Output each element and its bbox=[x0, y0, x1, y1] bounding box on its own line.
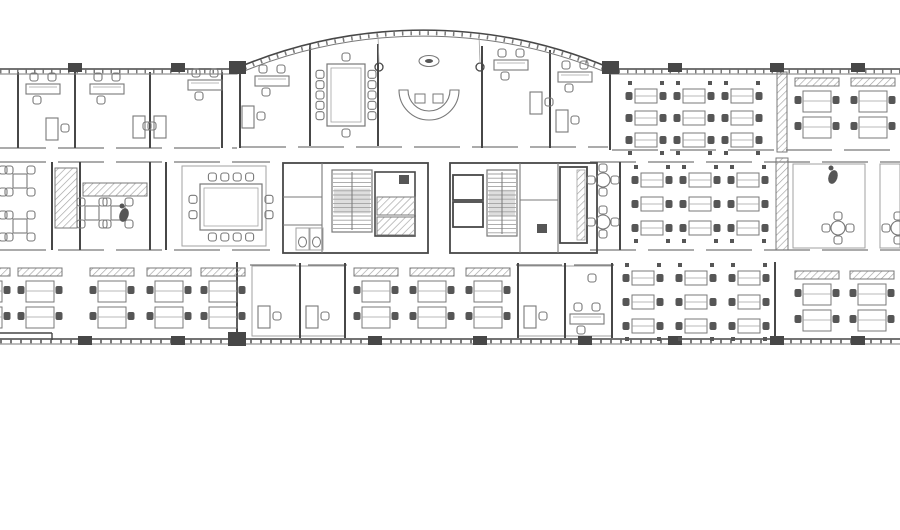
open-plan-desk-grids bbox=[623, 81, 770, 341]
document-canvas bbox=[0, 0, 900, 530]
restroom-fixtures bbox=[296, 228, 323, 250]
building-core bbox=[283, 163, 597, 253]
service-shaft bbox=[560, 167, 587, 243]
reception-lounge bbox=[399, 56, 459, 121]
elevator-bank bbox=[375, 172, 483, 236]
floor-plan bbox=[0, 0, 900, 530]
floor-plan-drawing bbox=[0, 0, 900, 530]
stairs bbox=[332, 170, 517, 236]
round-columns bbox=[375, 35, 484, 71]
